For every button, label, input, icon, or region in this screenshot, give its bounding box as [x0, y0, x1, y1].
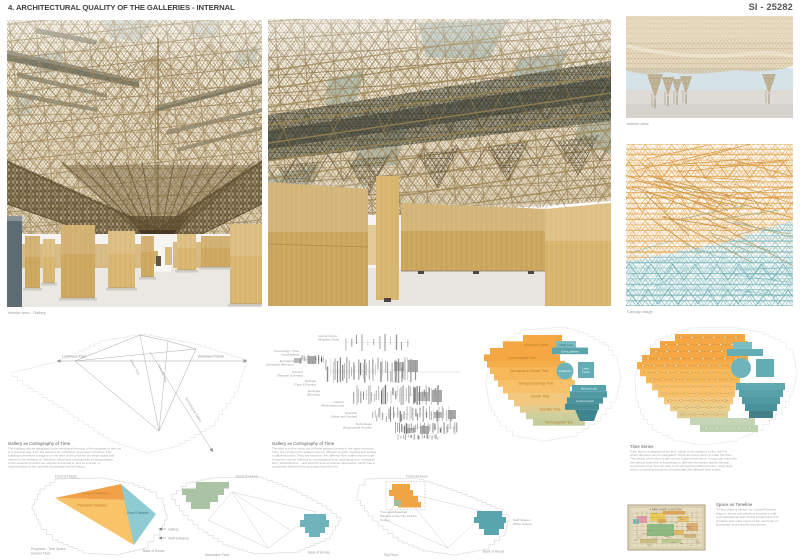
svg-text:Back of House: Back of House: [143, 549, 165, 553]
svg-text:Staff Entrance: Staff Entrance: [168, 537, 189, 541]
svg-text:completely different time and: completely different time and scale than…: [272, 465, 339, 469]
svg-text:Technological Gallery: Technological Gallery: [184, 396, 203, 423]
svg-text:Back of House: Back of House: [308, 551, 330, 555]
svg-text:Space as Timeline: Space as Timeline: [716, 502, 753, 507]
svg-text:Gallery: Gallery: [168, 528, 179, 532]
svg-text:Ground Floor: Ground Floor: [31, 552, 51, 556]
svg-text:doors, combining branches of k: doors, combining branches of knowledge a…: [630, 468, 722, 472]
svg-text:representation of the scientif: representation of the scientific knowled…: [8, 465, 85, 469]
svg-text:Biology & Ecology Time: Biology & Ecology Time: [519, 382, 554, 386]
svg-text:(Irregular) (Memory): (Irregular) (Memory): [266, 362, 294, 366]
svg-text:Front of House: Front of House: [55, 475, 77, 479]
svg-text:Memory Lock: Memory Lock: [581, 386, 598, 390]
svg-text:Environmental: Environmental: [576, 399, 594, 403]
svg-text:Programs - Time Space: Programs - Time Space: [31, 547, 66, 551]
svg-text:(Regular, Slow): (Regular, Slow): [318, 337, 339, 341]
svg-text:Gallery as Cartography of Time: Gallery as Cartography of Time: [8, 441, 71, 446]
svg-text:(Exponential Growth): (Exponential Growth): [343, 425, 372, 429]
svg-text:(Maps and Juntas): (Maps and Juntas): [331, 414, 357, 418]
svg-text:Geological & Climate Time: Geological & Climate Time: [510, 369, 549, 373]
svg-text:Office Spaces: Office Spaces: [513, 522, 533, 526]
svg-text:Auditorium: Auditorium: [558, 369, 572, 373]
svg-text:(Heterogeneous): (Heterogeneous): [321, 403, 344, 407]
svg-text:(Regular & Dense): (Regular & Dense): [277, 373, 303, 377]
svg-text:Sky Floor: Sky Floor: [384, 553, 399, 557]
svg-text:Front of House: Front of House: [406, 475, 428, 479]
svg-text:Cosmological Time: Cosmological Time: [508, 356, 536, 360]
svg-text:Technological Time: Technological Time: [545, 421, 573, 425]
svg-text:Back of House: Back of House: [483, 550, 505, 554]
svg-text:Time Series: Time Series: [630, 444, 654, 449]
svg-text:Gallery as Cartography of Time: Gallery as Cartography of Time: [272, 441, 335, 446]
svg-text:A NEW CHART of HISTORY: A NEW CHART of HISTORY: [650, 508, 683, 512]
svg-text:Centre: Centre: [582, 370, 590, 374]
svg-text:knowledge and scientific disco: knowledge and scientific discoveries.: [716, 523, 767, 527]
svg-text:Scientific Time: Scientific Time: [539, 408, 560, 412]
svg-text:Unknown Future: Unknown Future: [198, 355, 224, 359]
svg-text:Public Lock: Public Lock: [559, 343, 573, 347]
svg-text:Mezzanine Floor: Mezzanine Floor: [205, 553, 230, 557]
svg-text:(Type & Events): (Type & Events): [294, 382, 316, 386]
svg-text:Permanent Galleries: Permanent Galleries: [77, 504, 106, 508]
svg-text:(Morning): (Morning): [307, 392, 320, 396]
svg-text:Scientific Time: Scientific Time: [157, 364, 168, 384]
svg-text:Front of House: Front of House: [236, 475, 258, 479]
svg-text:Human Time: Human Time: [531, 395, 550, 399]
svg-text:Centre: Centre: [380, 518, 390, 522]
svg-text:Event galleries: Event galleries: [561, 349, 579, 353]
svg-text:Event Galleries: Event Galleries: [127, 511, 149, 515]
svg-text:(Unwrapped): (Unwrapped): [281, 352, 299, 356]
svg-text:Unknown Future: Unknown Future: [524, 343, 548, 347]
svg-text:Temporal Galleries: Temporal Galleries: [82, 492, 109, 496]
